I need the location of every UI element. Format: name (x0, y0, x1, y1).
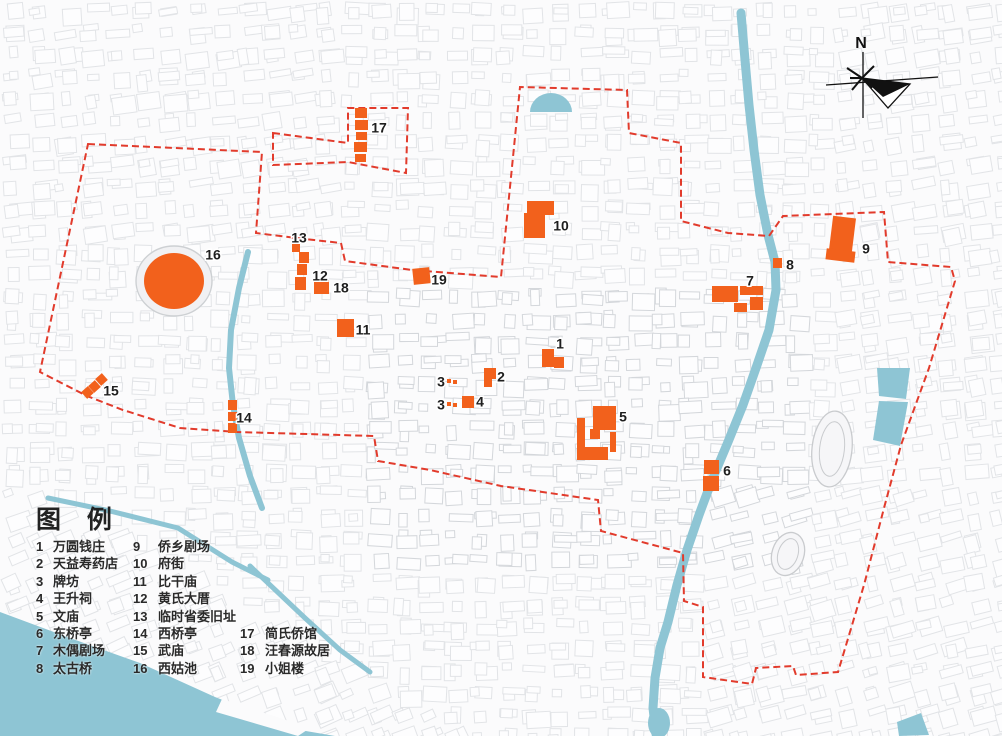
site-3 (447, 379, 451, 383)
site-17 (354, 142, 367, 152)
site-7 (750, 297, 763, 310)
site-17 (355, 108, 367, 118)
site-2 (484, 368, 496, 379)
site-11 (337, 319, 354, 337)
site-marker-6: 6 (723, 463, 731, 479)
site-5 (590, 429, 600, 439)
site-marker-8: 8 (786, 257, 794, 273)
site-marker-12: 12 (312, 268, 328, 284)
site-marker-5: 5 (619, 409, 627, 425)
site-marker-3: 3 (437, 374, 445, 390)
site-8 (773, 258, 782, 268)
site-marker-10: 10 (553, 218, 569, 234)
site-12 (297, 264, 307, 275)
site-marker-16: 16 (205, 247, 221, 263)
site-5 (580, 447, 608, 460)
site-2 (484, 379, 492, 387)
site-17 (355, 120, 368, 130)
site-marker-11: 11 (356, 322, 371, 338)
historic-district-map-page: 123345678910111213141516171819 N 图 例 1万圆… (0, 0, 1002, 736)
site-marker-19: 19 (431, 272, 447, 288)
site-3 (453, 380, 457, 384)
site-marker-2: 2 (497, 369, 505, 385)
site-19 (412, 267, 431, 285)
site-marker-13: 13 (291, 230, 307, 246)
site-marker-4: 4 (476, 394, 484, 410)
site-marker-3: 3 (437, 397, 445, 413)
site-14 (228, 400, 237, 410)
site-10 (527, 201, 554, 215)
site-6 (704, 460, 719, 474)
site-5 (593, 406, 616, 430)
site-marker-7: 7 (746, 273, 754, 289)
site-marker-18: 18 (333, 280, 349, 296)
site-1 (542, 349, 554, 367)
site-marker-17: 17 (371, 120, 387, 136)
site-4 (462, 396, 474, 408)
site-10 (524, 213, 545, 238)
site-7 (734, 303, 747, 312)
site-marker-9: 9 (862, 241, 870, 257)
north-label: N (855, 35, 867, 52)
site-16-pond (144, 253, 204, 309)
site-12 (295, 277, 306, 290)
site-17 (356, 132, 367, 140)
site-9 (829, 216, 856, 253)
site-12 (299, 252, 309, 263)
site-marker-15: 15 (103, 383, 119, 399)
site-17 (355, 154, 366, 162)
site-3 (453, 403, 457, 407)
site-marker-1: 1 (556, 336, 564, 352)
site-1 (554, 357, 564, 368)
map-canvas: 123345678910111213141516171819 N (0, 0, 1002, 736)
site-marker-14: 14 (236, 410, 252, 426)
site-3 (447, 402, 451, 406)
site-7 (712, 286, 738, 302)
site-6 (703, 476, 719, 491)
site-5 (610, 432, 616, 452)
